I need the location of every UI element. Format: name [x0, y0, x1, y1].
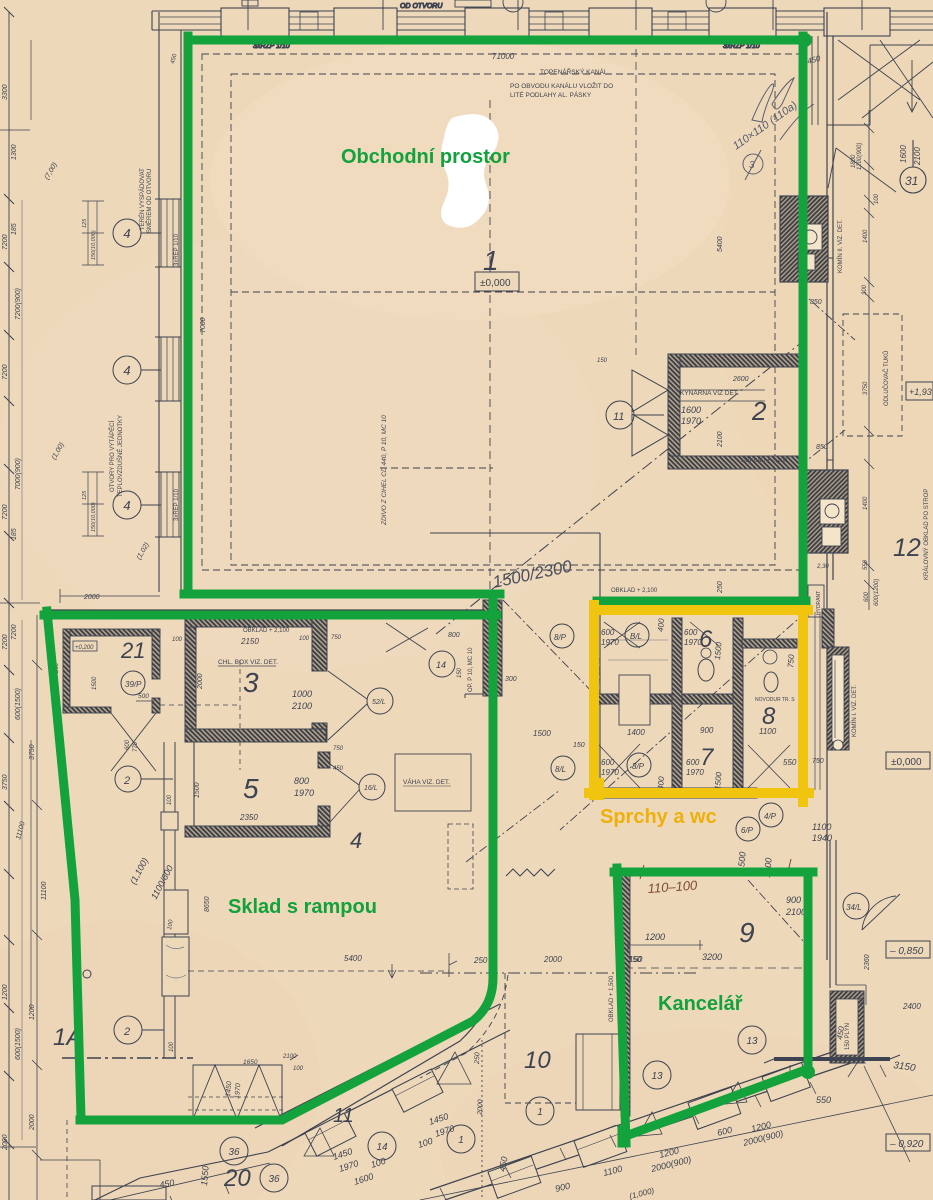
- svg-text:7: 7: [700, 744, 715, 771]
- svg-text:11100: 11100: [41, 881, 48, 900]
- svg-text:8650: 8650: [204, 896, 211, 912]
- svg-text:1970: 1970: [684, 638, 702, 647]
- svg-text:1500: 1500: [713, 771, 724, 790]
- svg-text:13: 13: [651, 1071, 663, 1082]
- svg-text:12: 12: [893, 534, 921, 562]
- svg-text:KYNÁRNA VIZ DET.: KYNÁRNA VIZ DET.: [680, 388, 739, 397]
- svg-text:OBKLAD + 2,100: OBKLAD + 2,100: [243, 628, 290, 634]
- svg-text:3200: 3200: [702, 952, 722, 962]
- svg-text:250: 250: [473, 956, 488, 965]
- svg-text:5400: 5400: [717, 236, 724, 252]
- svg-text:1500: 1500: [92, 676, 98, 690]
- svg-text:125: 125: [82, 218, 88, 228]
- svg-text:600: 600: [684, 628, 698, 637]
- svg-text:±0,000: ±0,000: [891, 757, 922, 768]
- svg-text:800: 800: [294, 776, 309, 786]
- svg-text:150: 150: [573, 742, 585, 749]
- svg-text:71000: 71000: [492, 52, 515, 61]
- svg-text:185: 185: [11, 528, 18, 540]
- svg-text:7200: 7200: [11, 624, 18, 640]
- svg-text:CHL. BOX VIZ. DET.: CHL. BOX VIZ. DET.: [218, 659, 278, 666]
- svg-text:3300: 3300: [2, 84, 9, 100]
- svg-text:7200: 7200: [2, 364, 9, 380]
- svg-text:OP. P 10, MC 10: OP. P 10, MC 10: [468, 647, 474, 692]
- svg-text:2,30: 2,30: [816, 564, 829, 570]
- svg-text:ODLUČOVAČ TUKŮ: ODLUČOVAČ TUKŮ: [883, 351, 890, 406]
- svg-text:14: 14: [376, 1142, 388, 1153]
- svg-text:1600: 1600: [899, 145, 908, 163]
- svg-text:4: 4: [123, 498, 130, 513]
- svg-text:600: 600: [686, 758, 700, 767]
- svg-text:150(10,000): 150(10,000): [91, 502, 97, 532]
- svg-text:600: 600: [864, 591, 870, 602]
- svg-text:1200: 1200: [2, 984, 9, 1000]
- svg-text:KOMÍN I. VIZ. DET.: KOMÍN I. VIZ. DET.: [851, 685, 858, 737]
- svg-text:Sklad s rampou: Sklad s rampou: [228, 896, 377, 918]
- svg-text:2100: 2100: [717, 431, 724, 448]
- svg-text:39/P: 39/P: [125, 680, 142, 689]
- svg-text:3750: 3750: [29, 744, 36, 760]
- svg-text:2100: 2100: [282, 1054, 297, 1060]
- svg-text:800: 800: [448, 632, 460, 639]
- svg-text:4/P: 4/P: [764, 812, 777, 821]
- svg-text:550: 550: [816, 1095, 831, 1105]
- svg-text:VÁHA VIZ. DET.: VÁHA VIZ. DET.: [403, 777, 450, 786]
- svg-text:7000: 7000: [200, 317, 207, 333]
- svg-text:550: 550: [863, 559, 869, 570]
- svg-text:750: 750: [860, 997, 866, 1008]
- svg-text:550: 550: [783, 758, 797, 767]
- svg-text:14: 14: [436, 660, 446, 670]
- svg-text:3750: 3750: [863, 381, 869, 395]
- svg-text:TOPENÁŘSKÝ KANÁL: TOPENÁŘSKÝ KANÁL: [540, 67, 608, 76]
- svg-text:1100: 1100: [812, 822, 831, 832]
- svg-text:1300: 1300: [11, 144, 18, 160]
- svg-text:OBKLAD + 2,100: OBKLAD + 2,100: [611, 588, 658, 594]
- svg-text:2150: 2150: [240, 637, 259, 646]
- svg-text:1550: 1550: [199, 1165, 211, 1186]
- svg-text:SMĚREM OD OTVORU: SMĚREM OD OTVORU: [145, 169, 153, 233]
- svg-text:2600: 2600: [732, 376, 749, 383]
- svg-text:1400: 1400: [627, 728, 645, 737]
- svg-text:2100: 2100: [913, 147, 922, 166]
- svg-text:1200: 1200: [645, 932, 665, 942]
- svg-text:7200: 7200: [2, 504, 9, 520]
- svg-text:400: 400: [656, 776, 666, 791]
- svg-text:2: 2: [751, 396, 767, 426]
- svg-text:750: 750: [812, 758, 824, 765]
- svg-text:100: 100: [172, 637, 183, 643]
- svg-text:500: 500: [138, 693, 149, 700]
- svg-text:100: 100: [169, 1041, 175, 1052]
- svg-text:7200: 7200: [2, 634, 9, 650]
- svg-text:NOVODUR TR. S: NOVODUR TR. S: [755, 697, 795, 703]
- svg-text:OBKLAD + 2,100: OBKLAD + 2,100: [741, 458, 788, 464]
- svg-text:5: 5: [243, 773, 259, 804]
- svg-text:1800: 1800: [851, 154, 857, 168]
- svg-text:2000: 2000: [2, 1134, 9, 1151]
- svg-text:7200: 7200: [2, 234, 9, 250]
- svg-text:3xREP 1/10: 3xREP 1/10: [174, 488, 180, 521]
- svg-text:4: 4: [350, 828, 362, 853]
- svg-text:1970: 1970: [234, 1083, 242, 1099]
- svg-text:1100: 1100: [759, 727, 777, 736]
- svg-text:31: 31: [905, 174, 918, 188]
- svg-text:8/L: 8/L: [555, 765, 566, 774]
- svg-text:10: 10: [524, 1047, 551, 1074]
- svg-text:1200: 1200: [29, 1004, 36, 1020]
- svg-text:1450: 1450: [225, 1081, 233, 1097]
- svg-text:– 0,920: – 0,920: [889, 1139, 924, 1150]
- svg-text:150: 150: [597, 358, 608, 364]
- svg-text:36: 36: [228, 1147, 240, 1158]
- svg-text:100: 100: [167, 794, 173, 805]
- svg-text:600(1200): 600(1200): [874, 579, 880, 606]
- svg-text:7200(900): 7200(900): [15, 288, 22, 320]
- svg-text:1940: 1940: [812, 833, 832, 843]
- svg-text:1500: 1500: [194, 782, 201, 798]
- svg-text:1970: 1970: [681, 416, 701, 426]
- svg-text:185: 185: [11, 223, 18, 235]
- svg-text:1: 1: [537, 1107, 543, 1118]
- svg-text:600(1500): 600(1500): [15, 1028, 22, 1060]
- svg-text:2: 2: [123, 1026, 130, 1038]
- svg-text:1500: 1500: [533, 729, 551, 738]
- svg-text:2000: 2000: [543, 955, 562, 964]
- svg-text:1400: 1400: [863, 496, 869, 510]
- svg-text:11: 11: [333, 1105, 354, 1127]
- svg-text:900: 900: [786, 895, 801, 905]
- svg-text:+1,93: +1,93: [909, 387, 932, 397]
- svg-text:OTVORY PRO VYTÁPĚCÍ: OTVORY PRO VYTÁPĚCÍ: [108, 421, 116, 492]
- svg-text:16/L: 16/L: [364, 785, 378, 792]
- svg-text:±0,000: ±0,000: [480, 278, 511, 289]
- svg-text:7000(900): 7000(900): [15, 458, 22, 490]
- svg-text:100: 100: [299, 636, 310, 642]
- svg-text:300: 300: [862, 284, 868, 295]
- svg-text:TEPLOVZDUŠNÉ JEDNOTKY: TEPLOVZDUŠNÉ JEDNOTKY: [117, 415, 124, 497]
- svg-text:1970: 1970: [601, 768, 619, 777]
- svg-text:1200(900): 1200(900): [857, 143, 863, 170]
- svg-text:600: 600: [601, 628, 615, 637]
- svg-text:21: 21: [120, 638, 145, 663]
- svg-text:– 0,850: – 0,850: [889, 946, 924, 957]
- svg-text:2000: 2000: [83, 594, 100, 601]
- svg-text:4: 4: [123, 226, 130, 241]
- svg-text:2100: 2100: [291, 701, 312, 711]
- svg-text:750: 750: [331, 635, 342, 641]
- svg-text:250: 250: [474, 1052, 481, 1065]
- svg-text:150: 150: [457, 667, 463, 678]
- svg-text:8/P: 8/P: [554, 633, 567, 642]
- svg-text:3xREP 1/10: 3xREP 1/10: [174, 233, 180, 266]
- svg-text:8: 8: [762, 703, 776, 730]
- svg-text:3: 3: [749, 160, 755, 171]
- svg-text:1: 1: [458, 1135, 464, 1146]
- svg-text:13: 13: [746, 1036, 758, 1047]
- svg-text:1: 1: [483, 245, 499, 276]
- svg-text:Obchodní prostor: Obchodní prostor: [341, 146, 510, 168]
- svg-text:850: 850: [816, 444, 828, 451]
- svg-text:6/P: 6/P: [741, 826, 754, 835]
- svg-text:B/L: B/L: [630, 632, 642, 641]
- svg-text:900: 900: [700, 726, 714, 735]
- svg-text:150(10,000): 150(10,000): [91, 230, 97, 260]
- svg-text:300: 300: [505, 676, 517, 683]
- svg-text:2: 2: [123, 775, 130, 787]
- svg-text:750: 750: [786, 654, 796, 669]
- svg-text:600: 600: [601, 758, 615, 767]
- svg-text:2350: 2350: [239, 813, 258, 822]
- svg-text:1970: 1970: [601, 638, 619, 647]
- svg-text:1000: 1000: [292, 689, 312, 699]
- svg-text:34/L: 34/L: [846, 903, 862, 912]
- svg-text:2100: 2100: [785, 907, 806, 917]
- svg-text:ZDIVO Z CIHEL CD 440, P 10, MC: ZDIVO Z CIHEL CD 440, P 10, MC 10: [381, 415, 388, 526]
- svg-text:1650: 1650: [243, 1059, 258, 1066]
- svg-text:100: 100: [293, 1066, 304, 1072]
- svg-text:PO OBVODU KANÁLU VLOŽIT DO: PO OBVODU KANÁLU VLOŽIT DO: [510, 81, 613, 90]
- svg-text:TERÉN VYSPÁDOVAT: TERÉN VYSPÁDOVAT: [139, 168, 146, 230]
- svg-text:LITÉ PODLAHY AL. PÁSKY: LITÉ PODLAHY AL. PÁSKY: [510, 90, 592, 99]
- svg-text:1970: 1970: [294, 788, 314, 798]
- svg-text:Sprchy a wc: Sprchy a wc: [600, 806, 717, 828]
- svg-text:1600: 1600: [681, 405, 701, 415]
- svg-text:+0,200: +0,200: [75, 645, 94, 651]
- svg-text:400: 400: [656, 618, 666, 633]
- svg-text:2360: 2360: [864, 954, 871, 971]
- svg-text:750: 750: [333, 746, 344, 752]
- svg-text:KRÁLOVNÝ OBKLAD PO STROP: KRÁLOVNÝ OBKLAD PO STROP: [923, 489, 930, 580]
- svg-text:125: 125: [82, 490, 88, 500]
- svg-text:OD OTVORU: OD OTVORU: [400, 3, 443, 10]
- svg-text:20: 20: [223, 1165, 251, 1192]
- svg-text:KOMÍN II. VIZ. DET.: KOMÍN II. VIZ. DET.: [837, 219, 844, 273]
- svg-text:2000: 2000: [477, 1099, 485, 1116]
- svg-text:250: 250: [717, 581, 724, 594]
- svg-text:1500: 1500: [713, 641, 724, 660]
- svg-text:150: 150: [628, 955, 642, 964]
- svg-text:3: 3: [243, 667, 259, 698]
- svg-text:11: 11: [613, 411, 624, 423]
- svg-text:9: 9: [739, 917, 755, 948]
- svg-text:2000: 2000: [197, 673, 204, 690]
- svg-text:OBKLAD + 1,500: OBKLAD + 1,500: [609, 975, 615, 1022]
- svg-text:5400: 5400: [344, 954, 362, 963]
- svg-text:36: 36: [268, 1174, 280, 1185]
- svg-text:2000: 2000: [29, 1114, 36, 1131]
- svg-text:600(1500): 600(1500): [15, 688, 22, 720]
- svg-text:3750: 3750: [2, 774, 9, 790]
- svg-text:1970: 1970: [686, 768, 704, 777]
- svg-text:52/L: 52/L: [372, 699, 386, 706]
- svg-text:Kancelář: Kancelář: [658, 993, 743, 1015]
- svg-text:HYDRANT: HYDRANT: [816, 591, 822, 615]
- svg-text:1400: 1400: [863, 229, 869, 243]
- svg-text:8/P: 8/P: [632, 762, 645, 771]
- svg-text:2400: 2400: [902, 1002, 921, 1011]
- svg-text:4: 4: [123, 363, 130, 378]
- svg-text:100: 100: [874, 193, 880, 204]
